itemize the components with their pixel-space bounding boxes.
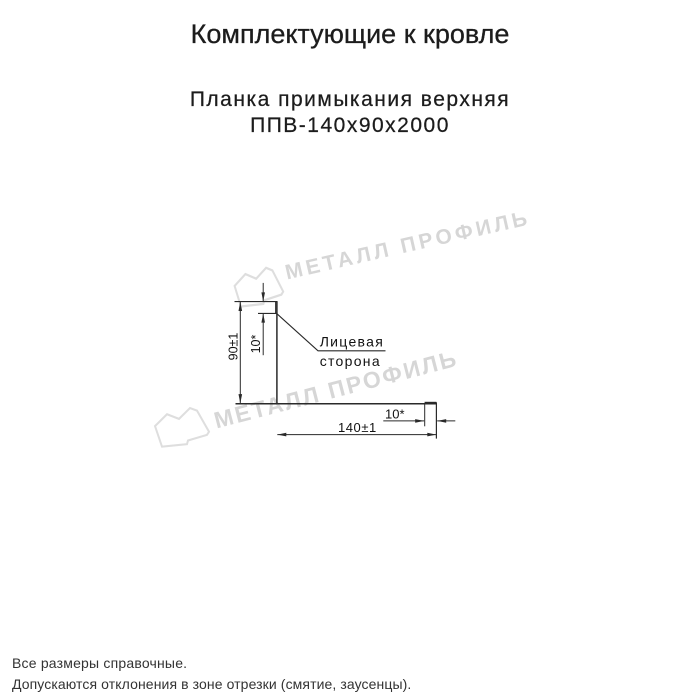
- svg-text:10*: 10*: [385, 406, 405, 421]
- svg-text:сторона: сторона: [320, 353, 381, 369]
- svg-text:10*: 10*: [249, 334, 263, 353]
- svg-text:Лицевая: Лицевая: [320, 333, 384, 349]
- svg-text:МЕТАЛЛ ПРОФИЛЬ: МЕТАЛЛ ПРОФИЛЬ: [283, 206, 533, 284]
- svg-text:90±1: 90±1: [227, 333, 241, 361]
- svg-text:140±1: 140±1: [338, 420, 377, 435]
